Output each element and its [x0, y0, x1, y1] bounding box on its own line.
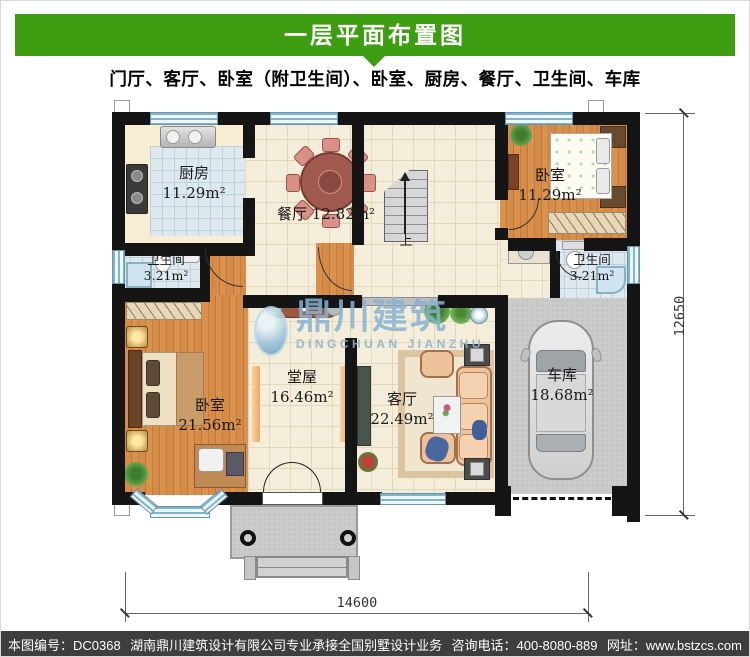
- step-side-right: [348, 556, 360, 580]
- bath-right-label: 卫生间 3.21m²: [556, 252, 628, 285]
- dim-width-value: 14600: [327, 595, 387, 611]
- kitchen-name: 厨房: [152, 164, 236, 184]
- bed-left-pillow-1: [146, 360, 160, 386]
- armchair-top: [420, 350, 454, 378]
- dining-table-center: [318, 170, 342, 194]
- window-bath-right: [627, 246, 640, 284]
- dining-chair: [322, 138, 340, 152]
- wall-stairwell: [352, 112, 364, 245]
- plant-living-small: [358, 452, 378, 472]
- sofa-cushion-1: [459, 372, 488, 399]
- bath-left-area: 3.21m²: [128, 268, 204, 284]
- floor-plan: 上: [0, 0, 750, 657]
- window-bath-left: [112, 250, 125, 284]
- corner-marker-bottom-left: [114, 504, 130, 516]
- wall-kitchen-divider-top: [243, 112, 255, 158]
- wall-middle-a: [243, 295, 362, 308]
- garage-door-jamb-right: [612, 486, 640, 516]
- bath-left-label: 卫生间 3.21m²: [128, 252, 204, 285]
- footer-bar: 本图编号：DC0368 湖南鼎川建筑设计有限公司专业承接全国别墅设计业务 咨询电…: [0, 631, 750, 657]
- porch-column-left: [240, 530, 256, 546]
- kitchen-area: 11.29m²: [152, 184, 236, 204]
- footer-drawing-no: 本图编号：DC0368: [8, 635, 121, 654]
- wall-bedroom-top-left-b: [495, 228, 508, 240]
- stove-burner-2: [131, 192, 143, 204]
- stairs-arrow-head: [400, 172, 410, 181]
- nightstand-left-1: [126, 326, 148, 348]
- hall-area: 16.46m²: [260, 388, 344, 408]
- side-table-bottom-inner: [470, 462, 484, 476]
- wardrobe-bedroom-left: [126, 302, 202, 320]
- bath-right-area: 3.21m²: [556, 268, 628, 284]
- bed-left-pillow-2: [146, 392, 160, 418]
- wall-bedroom-top-bottom-a: [508, 238, 556, 251]
- person-sofa: [472, 420, 487, 440]
- dining-label: 餐厅 12.82m²: [262, 205, 390, 225]
- bed-top-pillow-1: [596, 138, 610, 164]
- plant-bedroom-top: [510, 124, 532, 146]
- plant-bedroom-left: [124, 462, 148, 486]
- window-dining-top: [270, 112, 338, 125]
- bedroom-top-label: 卧室 11.29m²: [508, 166, 592, 205]
- dim-right-ext-top: [645, 113, 695, 114]
- dim-height-value: 12650: [672, 284, 688, 348]
- dining-area: 12.82m²: [312, 205, 375, 223]
- bath-left-name: 卫生间: [128, 252, 204, 268]
- window-kitchen-top: [150, 112, 218, 125]
- garage-door-dashed: [513, 497, 611, 500]
- stove-burner-1: [131, 170, 143, 182]
- wardrobe-bedroom-top: [548, 212, 626, 234]
- living-threshold: [362, 297, 438, 306]
- stairs-arrow-line: [404, 180, 406, 234]
- page-title: 一层平面布置图: [15, 14, 735, 56]
- step-side-left: [244, 556, 256, 580]
- bed-top-pillow-2: [596, 168, 610, 194]
- living-label: 客厅 22.49m²: [360, 390, 444, 429]
- window-living-bottom: [380, 493, 446, 505]
- porch-column-right: [340, 530, 356, 546]
- bath-right-name: 卫生间: [556, 252, 628, 268]
- hall-column-left: [252, 366, 260, 442]
- entry-steps: [256, 556, 348, 578]
- bedroom-top-area: 11.29m²: [508, 186, 592, 206]
- footer-phone: 咨询电话：400-8080-889: [452, 635, 598, 654]
- wall-bedroom-top-left-a: [495, 112, 508, 200]
- room-list-subtitle: 门厅、客厅、卧室（附卫生间）、卧室、厨房、餐厅、卫生间、车库: [0, 66, 750, 91]
- side-table-top-inner: [470, 348, 484, 362]
- hall-name: 堂屋: [260, 368, 344, 388]
- wall-right: [627, 112, 640, 522]
- hall-label: 堂屋 16.46m²: [260, 368, 344, 407]
- window-bedroom-top: [505, 112, 573, 125]
- desk-monitor: [226, 452, 244, 476]
- car-rear-window: [536, 434, 586, 452]
- dim-right-ext-bottom: [645, 515, 695, 516]
- desk-chair: [198, 448, 224, 472]
- double-door-base: [262, 492, 323, 505]
- wall-bottom-3: [323, 492, 382, 505]
- bedroom-left-name: 卧室: [168, 396, 252, 416]
- bedroom-left-area: 21.56m²: [168, 416, 252, 436]
- kitchen-label: 厨房 11.29m²: [152, 164, 236, 203]
- bedroom-top-name: 卧室: [508, 166, 592, 186]
- stairs-up-label: 上: [392, 234, 420, 251]
- dining-chair: [286, 174, 300, 192]
- garage-area: 18.68m²: [528, 386, 596, 406]
- dim-bottom-line: [125, 613, 589, 614]
- footer-website: 网址：www.bstzcs.com: [607, 635, 742, 654]
- footer-company: 湖南鼎川建筑设计有限公司专业承接全国别墅设计业务: [130, 635, 442, 654]
- dining-name: 餐厅: [277, 205, 307, 223]
- bedroom-left-label: 卧室 21.56m²: [168, 396, 252, 435]
- nightstand-left-2: [126, 430, 148, 452]
- wall-kitchen-divider-bottom: [243, 198, 255, 256]
- kitchen-sink-basin-1: [166, 130, 180, 144]
- living-name: 客厅: [360, 390, 444, 410]
- title-banner: 一层平面布置图: [15, 14, 735, 56]
- vase-living: [470, 306, 488, 324]
- toilet-right-tank: [562, 241, 586, 250]
- dining-chair: [362, 174, 376, 192]
- wall-hall-living: [345, 338, 357, 492]
- living-area: 22.49m²: [360, 410, 444, 430]
- wall-living-garage: [495, 295, 508, 495]
- kitchen-sink-basin-2: [188, 130, 202, 144]
- wall-bath-left-bottom: [112, 288, 208, 302]
- bed-left-headboard: [128, 350, 142, 428]
- garage-name: 车库: [528, 366, 596, 386]
- garage-label: 车库 18.68m²: [528, 366, 596, 405]
- wall-left: [112, 112, 125, 505]
